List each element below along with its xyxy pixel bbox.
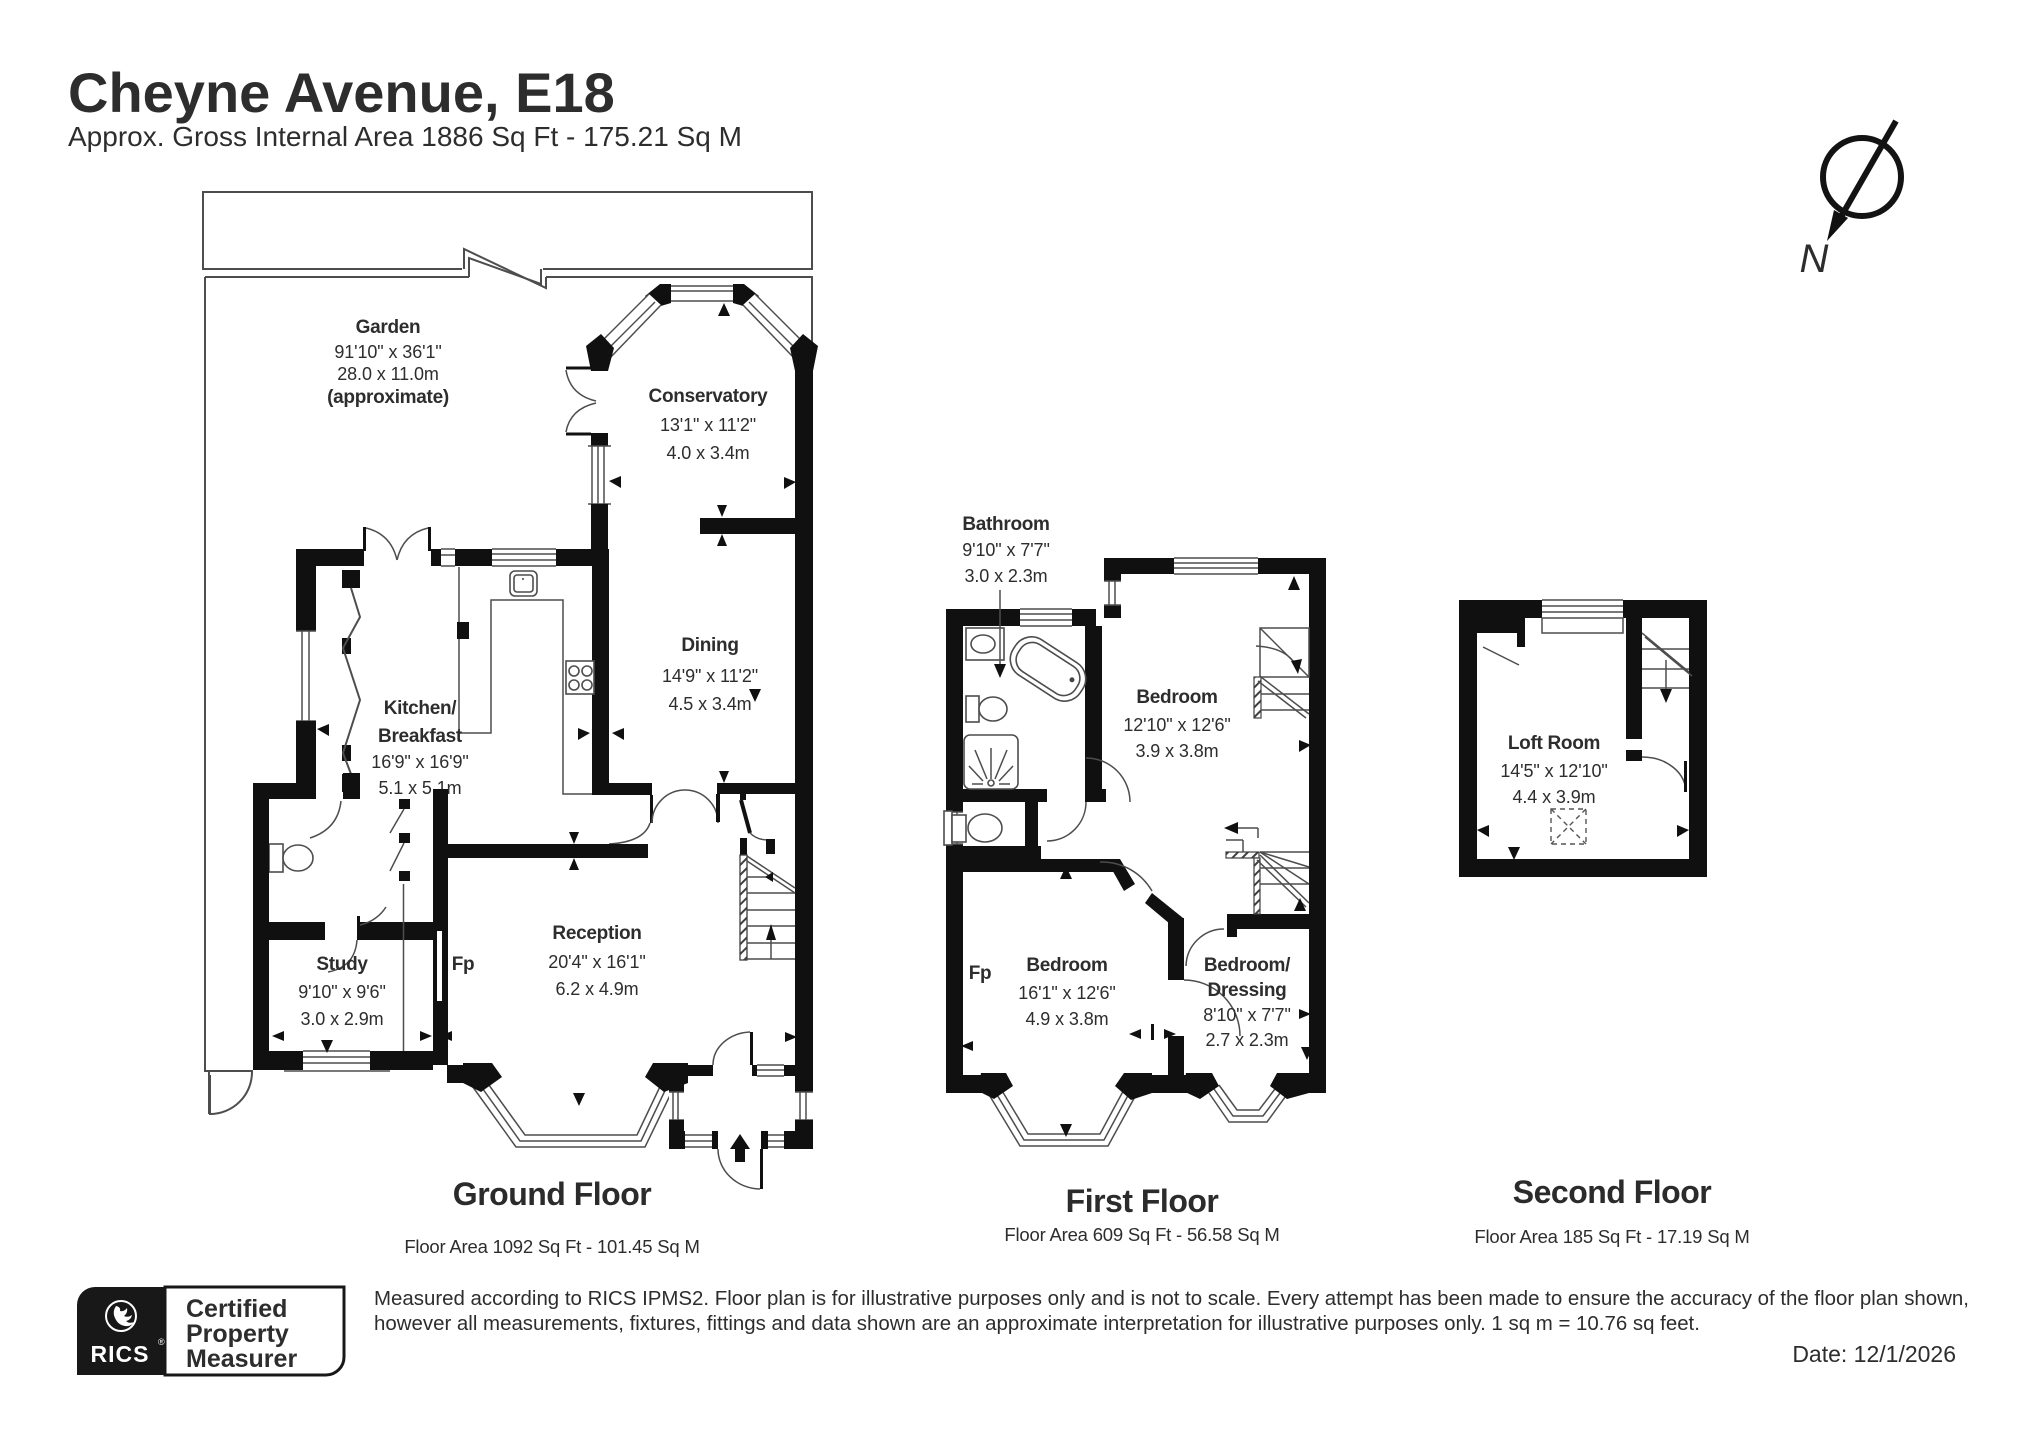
- svg-text:Kitchen/: Kitchen/: [384, 698, 458, 719]
- svg-text:Date: 12/1/2026: Date: 12/1/2026: [1792, 1341, 1956, 1367]
- svg-text:4.0 x 3.4m: 4.0 x 3.4m: [666, 443, 749, 463]
- svg-text:Breakfast: Breakfast: [378, 726, 463, 747]
- svg-text:Floor Area 609 Sq Ft - 56.58 S: Floor Area 609 Sq Ft - 56.58 Sq M: [1004, 1224, 1279, 1245]
- svg-text:4.4 x 3.9m: 4.4 x 3.9m: [1512, 787, 1595, 807]
- svg-text:Bedroom: Bedroom: [1026, 955, 1107, 976]
- svg-text:Loft Room: Loft Room: [1508, 733, 1600, 754]
- svg-text:Garden: Garden: [356, 317, 421, 338]
- svg-text:RICS: RICS: [91, 1341, 150, 1367]
- svg-text:12'10" x 12'6": 12'10" x 12'6": [1123, 715, 1230, 735]
- svg-text:14'9" x 11'2": 14'9" x 11'2": [662, 666, 758, 686]
- svg-text:14'5" x 12'10": 14'5" x 12'10": [1500, 761, 1607, 781]
- svg-text:Bedroom: Bedroom: [1136, 687, 1217, 708]
- svg-text:Ground Floor: Ground Floor: [453, 1176, 651, 1212]
- svg-text:16'1" x 12'6": 16'1" x 12'6": [1018, 983, 1115, 1003]
- svg-text:Dressing: Dressing: [1208, 980, 1287, 1001]
- svg-text:however all measurements, fixt: however all measurements, fixtures, fitt…: [374, 1312, 1700, 1335]
- svg-text:Second Floor: Second Floor: [1513, 1174, 1712, 1210]
- svg-text:Reception: Reception: [552, 923, 641, 944]
- svg-text:16'9" x 16'9": 16'9" x 16'9": [371, 752, 468, 772]
- svg-text:Fp: Fp: [452, 954, 475, 975]
- svg-text:®: ®: [158, 1337, 165, 1347]
- svg-text:20'4" x 16'1": 20'4" x 16'1": [548, 952, 645, 972]
- svg-text:8'10" x 7'7": 8'10" x 7'7": [1203, 1005, 1291, 1025]
- svg-text:First Floor: First Floor: [1066, 1183, 1219, 1219]
- svg-text:13'1" x 11'2": 13'1" x 11'2": [660, 415, 756, 435]
- svg-text:2.7 x 2.3m: 2.7 x 2.3m: [1205, 1030, 1288, 1050]
- svg-text:4.5 x 3.4m: 4.5 x 3.4m: [668, 694, 751, 714]
- svg-text:Approx. Gross Internal Area 18: Approx. Gross Internal Area 1886 Sq Ft -…: [68, 121, 742, 152]
- svg-text:Bathroom: Bathroom: [962, 514, 1049, 535]
- svg-text:Cheyne Avenue, E18: Cheyne Avenue, E18: [68, 61, 615, 124]
- svg-text:Measurer: Measurer: [186, 1345, 297, 1373]
- svg-text:Bedroom/: Bedroom/: [1204, 955, 1291, 976]
- svg-text:91'10" x 36'1": 91'10" x 36'1": [334, 342, 441, 362]
- svg-text:(approximate): (approximate): [327, 387, 449, 408]
- svg-text:28.0 x 11.0m: 28.0 x 11.0m: [337, 364, 439, 384]
- svg-text:Dining: Dining: [681, 635, 738, 656]
- svg-text:5.1 x 5.1m: 5.1 x 5.1m: [378, 778, 461, 798]
- svg-text:3.0 x 2.3m: 3.0 x 2.3m: [964, 566, 1047, 586]
- svg-text:Fp: Fp: [969, 963, 992, 984]
- svg-text:N: N: [1800, 237, 1829, 281]
- svg-text:3.9 x 3.8m: 3.9 x 3.8m: [1135, 741, 1218, 761]
- svg-text:Floor Area 185 Sq Ft - 17.19 S: Floor Area 185 Sq Ft - 17.19 Sq M: [1474, 1226, 1749, 1247]
- svg-text:Certified: Certified: [186, 1295, 287, 1323]
- svg-text:Study: Study: [316, 954, 368, 975]
- svg-text:3.0 x 2.9m: 3.0 x 2.9m: [300, 1009, 383, 1029]
- svg-text:9'10" x 9'6": 9'10" x 9'6": [298, 982, 386, 1002]
- svg-text:Conservatory: Conservatory: [649, 386, 769, 407]
- svg-text:Property: Property: [186, 1320, 289, 1348]
- svg-text:6.2 x 4.9m: 6.2 x 4.9m: [555, 979, 638, 999]
- svg-text:Floor Area 1092 Sq Ft - 101.45: Floor Area 1092 Sq Ft - 101.45 Sq M: [404, 1236, 699, 1257]
- svg-text:4.9 x 3.8m: 4.9 x 3.8m: [1025, 1009, 1108, 1029]
- svg-text:9'10" x 7'7": 9'10" x 7'7": [962, 540, 1050, 560]
- svg-text:Measured according to RICS IPM: Measured according to RICS IPMS2. Floor …: [374, 1287, 1969, 1310]
